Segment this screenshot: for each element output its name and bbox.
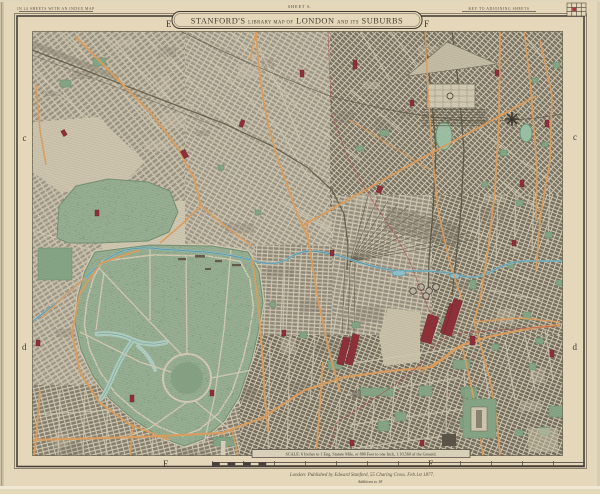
svg-text:c: c — [23, 133, 27, 143]
svg-text:F: F — [424, 19, 429, 29]
svg-text:SHEET 6.: SHEET 6. — [288, 4, 312, 9]
svg-text:KEY TO ADJOINING SHEETS: KEY TO ADJOINING SHEETS — [468, 7, 529, 11]
svg-text:E: E — [163, 459, 169, 469]
svg-text:c: c — [573, 132, 577, 142]
svg-text:E: E — [166, 19, 172, 29]
svg-text:STANFORD'S LIBRARY MAP OF LOND: STANFORD'S LIBRARY MAP OF LONDON AND ITS… — [191, 17, 403, 26]
svg-text:d: d — [573, 342, 578, 352]
svg-text:Additions to 18: Additions to 18 — [357, 479, 382, 484]
svg-text:F: F — [428, 459, 433, 469]
svg-text:London: Published by Edward St: London: Published by Edward Stanford, 55… — [289, 473, 434, 478]
svg-text:d: d — [22, 342, 27, 352]
svg-text:IN 24 SHEETS WITH AN INDEX MAP: IN 24 SHEETS WITH AN INDEX MAP — [17, 7, 95, 11]
